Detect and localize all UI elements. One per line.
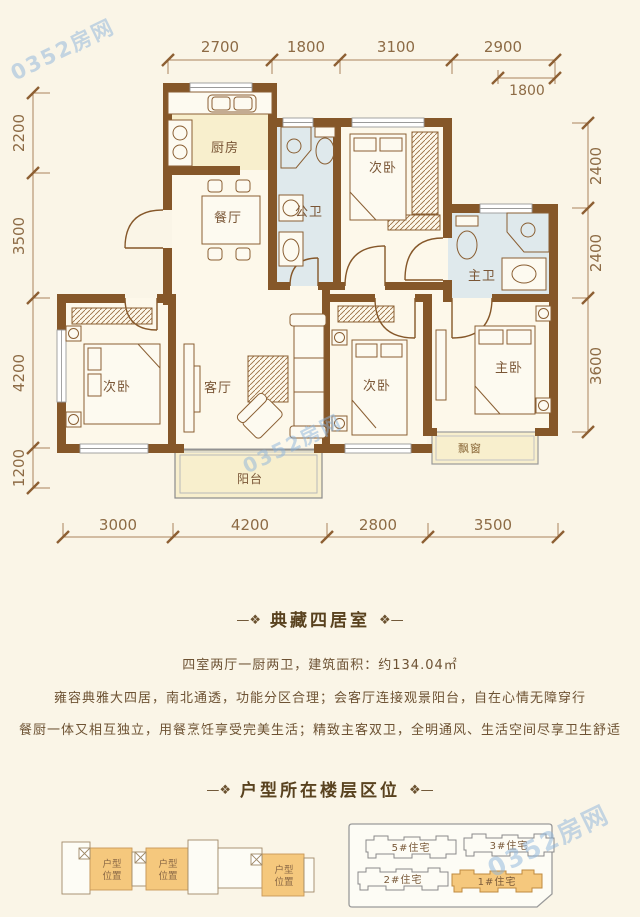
building-1-label: 1#住宅	[478, 875, 517, 888]
ornament-right-icon: ❖—	[409, 783, 434, 798]
location-title-row: —❖户型所在楼层区位❖—	[0, 776, 640, 801]
label-bath-master: 主卫	[468, 269, 496, 284]
building-2-label: 2#住宅	[384, 873, 423, 886]
label-bed-left: 次卧	[103, 379, 131, 395]
dim-top-3: 2900	[484, 38, 522, 56]
dim-left-0: 2200	[10, 114, 28, 152]
dim-bottom-1: 4200	[231, 516, 269, 534]
dim-right-2: 3600	[587, 347, 605, 385]
unit-marker: 位置	[102, 870, 121, 882]
unit-summary: 四室两厅一厨两卫，建筑面积：约134.04㎡	[0, 654, 640, 673]
label-bed-master: 主卧	[495, 361, 523, 376]
site-plan: 5#住宅 3#住宅 2#住宅 1#住宅	[349, 824, 554, 907]
unit-marker: 户型	[158, 858, 178, 870]
label-living: 客厅	[204, 380, 232, 396]
location-svg: 户型 位置 户型 位置 户型 位置 5#住宅 3#住宅 2#住宅 1#住宅	[0, 812, 640, 917]
dim-top-sub: 1800	[509, 83, 545, 99]
label-bed-mid: 次卧	[363, 378, 391, 394]
kitchen-counter-sink	[168, 92, 272, 114]
label-bath-public: 公卫	[295, 205, 323, 220]
ornament-left-icon: —❖	[236, 613, 261, 628]
unit-marker: 户型	[102, 858, 122, 870]
kitchen-stove	[168, 120, 192, 166]
ornament-left-icon: —❖	[206, 783, 231, 798]
dim-top-1: 1800	[287, 38, 325, 56]
dim-bottom-3: 3500	[474, 516, 512, 534]
unit-desc-line2: 餐厨一体又相互独立，用餐烹饪享受完美生活；精致主客双卫，全明通风、生活空间尽享卫…	[0, 719, 640, 738]
bed-top-furniture	[350, 132, 438, 220]
dim-left-1: 3500	[10, 217, 28, 255]
dim-right-1: 2400	[587, 234, 605, 272]
dim-bottom-2: 2800	[359, 516, 397, 534]
label-dining: 餐厅	[214, 210, 242, 226]
unit-desc-line1: 雍容典雅大四居，南北通透，功能分区合理；会客厅连接观景阳台，自在心情无障穿行	[0, 687, 640, 706]
building-3-label: 3#住宅	[490, 839, 529, 852]
floorplan-svg: 厨房 餐厅 公卫 次卧 主卫 次卧 客厅 次卧 主卧 阳台 飘窗	[0, 0, 640, 580]
unit-title-row: —❖典藏四居室❖—	[0, 606, 640, 631]
ornament-right-icon: ❖—	[379, 613, 404, 628]
unit-marker: 户型	[274, 864, 294, 876]
dim-top-2: 3100	[377, 38, 415, 56]
label-kitchen: 厨房	[211, 140, 239, 156]
unit-marker: 位置	[158, 870, 177, 882]
dim-left-2: 4200	[10, 354, 28, 392]
dim-left-3: 1200	[10, 449, 28, 487]
bay-window	[432, 432, 538, 464]
building-5-label: 5#住宅	[392, 841, 431, 854]
dim-right-0: 2400	[587, 147, 605, 185]
unit-marker: 位置	[274, 876, 293, 888]
dim-top-0: 2700	[201, 38, 239, 56]
unit-title: 典藏四居室	[270, 611, 370, 631]
dim-bottom-0: 3000	[99, 516, 137, 534]
label-bay-window: 飘窗	[458, 441, 482, 455]
location-title: 户型所在楼层区位	[240, 781, 400, 801]
label-balcony: 阳台	[237, 471, 263, 486]
floorplan-page: 厨房 餐厅 公卫 次卧 主卫 次卧 客厅 次卧 主卧 阳台 飘窗	[0, 0, 640, 917]
label-bed-top: 次卧	[369, 160, 397, 176]
